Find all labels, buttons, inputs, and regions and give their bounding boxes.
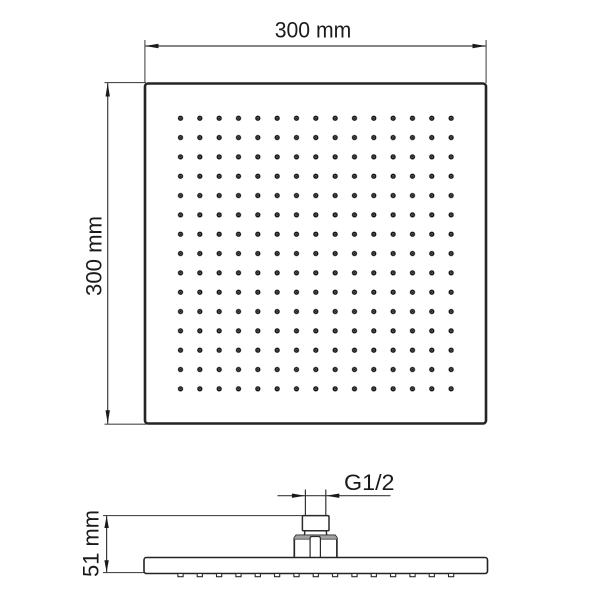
- svg-text:300 mm: 300 mm: [82, 216, 107, 296]
- svg-text:51 mm: 51 mm: [78, 510, 103, 577]
- svg-text:300 mm: 300 mm: [275, 18, 352, 43]
- svg-text:G1/2: G1/2: [344, 470, 395, 495]
